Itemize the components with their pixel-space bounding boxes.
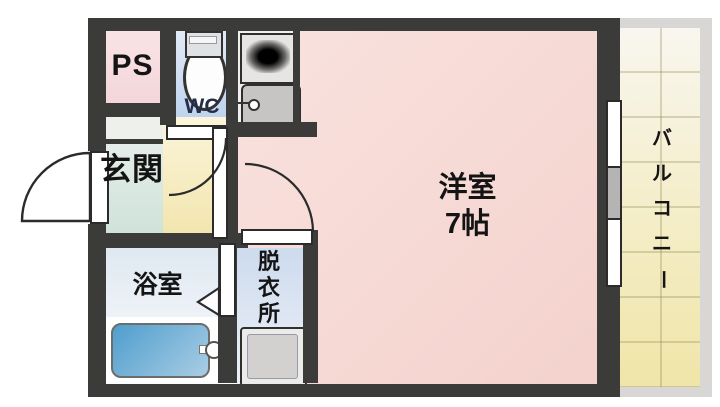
label-balcony: バ ル コ ニ ー xyxy=(649,122,675,297)
label-dressing-room: 脱 衣 所 xyxy=(255,249,283,327)
label-dress-char: 脱 xyxy=(258,249,280,275)
cabinet-handle-icon xyxy=(248,99,260,111)
label-balcony-char: ー xyxy=(645,270,680,290)
label-balcony-char: バ xyxy=(652,122,672,157)
label-main-room-size: 7帖 xyxy=(405,206,530,242)
label-wc: WC xyxy=(176,95,228,118)
window-sash-overlap xyxy=(608,166,620,220)
washing-machine-icon xyxy=(247,334,298,379)
label-dress-char: 所 xyxy=(258,301,280,327)
bath-door-opening xyxy=(219,243,236,317)
label-balcony-char: コ xyxy=(652,192,672,227)
wall-outer-bottom xyxy=(88,384,620,397)
main-door-opening xyxy=(212,127,228,239)
label-main-room: 洋室 7帖 xyxy=(405,170,530,242)
bathtub-icon xyxy=(111,323,210,378)
wall-dress-main-divider xyxy=(303,230,318,383)
hall-floor-strip xyxy=(105,117,163,139)
wall-kitchen-partition xyxy=(293,18,300,124)
floor-plan: PS WC 玄関 洋室 7帖 浴室 脱 衣 所 バ ル コ ニ ー xyxy=(0,0,720,407)
toilet-tank-detail xyxy=(189,36,217,44)
label-balcony-char: ル xyxy=(652,157,672,192)
wall-kitchen-bottom-stub xyxy=(230,122,317,137)
stove-burner-icon xyxy=(246,40,290,73)
label-pipe-space: PS xyxy=(105,49,160,82)
label-main-room-name: 洋室 xyxy=(405,170,530,206)
genkan-step-line xyxy=(105,139,163,144)
wall-ps-wc-divider xyxy=(160,18,176,125)
wall-outer-left-upper xyxy=(88,18,106,151)
front-door-swing-arc xyxy=(22,153,90,221)
label-genkan: 玄関 xyxy=(100,153,164,187)
label-dress-char: 衣 xyxy=(258,275,280,301)
label-bathroom: 浴室 xyxy=(120,272,195,300)
wall-outer-left-lower xyxy=(88,224,106,397)
balcony-window xyxy=(606,100,622,287)
label-balcony-char: ニ xyxy=(652,227,672,262)
main-door-leaf xyxy=(241,229,313,245)
